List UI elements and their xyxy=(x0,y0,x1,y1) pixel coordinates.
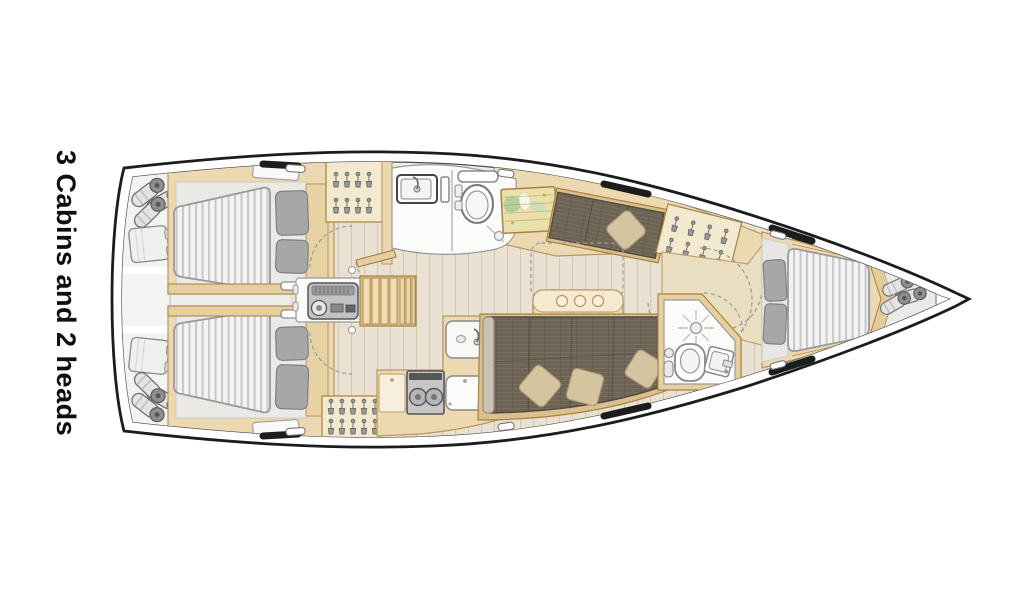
v-berth xyxy=(788,249,869,351)
stairs-icon xyxy=(360,276,416,326)
deck-hatch-icon xyxy=(286,164,305,172)
aft-cabin-port xyxy=(168,152,334,294)
toilet-paper-icon xyxy=(665,349,674,358)
yacht-floorplan-page: 3 Cabins and 2 heads xyxy=(0,0,1024,600)
sink-icon xyxy=(397,175,437,203)
stove-icon xyxy=(407,371,444,414)
floorplan-svg xyxy=(0,0,1024,600)
deck-hatch-icon xyxy=(498,169,515,178)
aft-cabin-starboard xyxy=(168,306,334,448)
deck-hatch-icon xyxy=(286,427,305,435)
shower-icon xyxy=(678,310,714,346)
engine-icon xyxy=(308,283,358,319)
chart-table xyxy=(501,187,557,234)
wardrobe-aft-port xyxy=(326,160,384,222)
toilet-icon xyxy=(675,344,705,381)
wardrobe-aft-starboard xyxy=(322,396,380,438)
deck-hatch-icon xyxy=(498,422,515,431)
